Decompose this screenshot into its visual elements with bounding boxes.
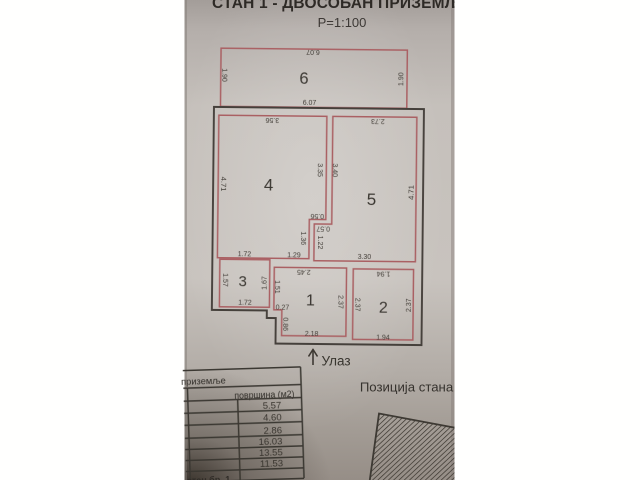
svg-text:1.72: 1.72 bbox=[238, 300, 252, 307]
svg-text:6.07: 6.07 bbox=[306, 48, 320, 55]
svg-text:1.72: 1.72 bbox=[238, 251, 252, 258]
svg-text:стан бр. 1: стан бр. 1 bbox=[187, 474, 231, 480]
svg-text:1.94: 1.94 bbox=[376, 335, 390, 342]
svg-text:1.57: 1.57 bbox=[221, 273, 228, 287]
svg-text:1.90: 1.90 bbox=[220, 68, 227, 82]
svg-text:2.18: 2.18 bbox=[305, 331, 319, 338]
svg-text:1.22: 1.22 bbox=[316, 236, 323, 250]
svg-text:2: 2 bbox=[379, 300, 388, 317]
svg-text:2.73: 2.73 bbox=[371, 117, 385, 124]
svg-text:СТАН 1 - ДВОСОБАН ПРИЗЕМЉЕ: СТАН 1 - ДВОСОБАН ПРИЗЕМЉЕ bbox=[212, 0, 472, 12]
svg-text:приземље: приземље bbox=[181, 375, 226, 386]
svg-text:4.60: 4.60 bbox=[263, 412, 282, 424]
svg-text:2.45: 2.45 bbox=[297, 268, 311, 275]
svg-text:4: 4 bbox=[264, 175, 274, 194]
svg-text:1.94: 1.94 bbox=[377, 270, 391, 277]
svg-text:6.07: 6.07 bbox=[303, 100, 317, 107]
svg-text:13.55: 13.55 bbox=[259, 447, 283, 459]
svg-text:Улаз: Улаз bbox=[322, 354, 351, 369]
svg-text:Позиција стана: Позиција стана bbox=[360, 380, 454, 395]
svg-text:4.71: 4.71 bbox=[406, 185, 415, 200]
svg-text:0.27: 0.27 bbox=[276, 305, 290, 312]
svg-text:4.71: 4.71 bbox=[219, 177, 228, 192]
svg-text:3.35: 3.35 bbox=[316, 163, 323, 177]
svg-text:5: 5 bbox=[367, 190, 377, 209]
svg-text:Р=1:100: Р=1:100 bbox=[318, 15, 367, 30]
svg-text:1.36: 1.36 bbox=[299, 231, 306, 245]
svg-text:16.03: 16.03 bbox=[258, 436, 282, 448]
svg-text:1.90: 1.90 bbox=[398, 72, 405, 86]
svg-text:0.86: 0.86 bbox=[281, 317, 288, 331]
svg-text:3.56: 3.56 bbox=[265, 116, 279, 123]
svg-text:3.30: 3.30 bbox=[358, 254, 372, 261]
svg-text:5.57: 5.57 bbox=[263, 400, 282, 412]
svg-text:1.51: 1.51 bbox=[273, 280, 280, 294]
svg-text:2.37: 2.37 bbox=[337, 295, 344, 309]
svg-text:11.53: 11.53 bbox=[260, 458, 283, 470]
svg-text:1.67: 1.67 bbox=[261, 276, 268, 290]
svg-text:2.37: 2.37 bbox=[406, 298, 413, 312]
svg-text:0.56: 0.56 bbox=[310, 212, 324, 219]
svg-text:1: 1 bbox=[306, 292, 315, 309]
svg-text:1.29: 1.29 bbox=[287, 252, 301, 259]
svg-text:6: 6 bbox=[299, 70, 308, 88]
svg-text:3: 3 bbox=[238, 273, 247, 290]
svg-text:0.57: 0.57 bbox=[316, 225, 330, 232]
svg-text:3.40: 3.40 bbox=[331, 163, 338, 177]
svg-text:2.37: 2.37 bbox=[353, 298, 360, 312]
svg-text:2.86: 2.86 bbox=[263, 425, 282, 437]
